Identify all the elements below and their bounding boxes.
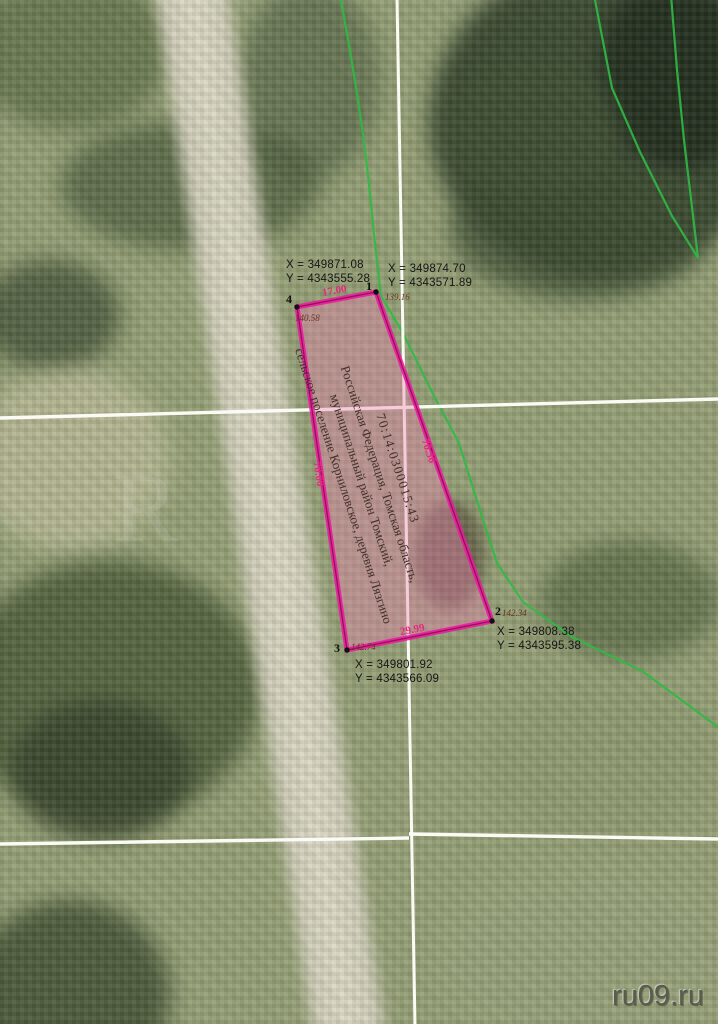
vertex-number-2: 2 <box>495 604 501 619</box>
point-3-coordinates: X = 349801.92 Y = 4343566.09 <box>355 658 439 686</box>
vertex-number-4: 4 <box>286 292 292 307</box>
point-2-x: X = 349808.38 <box>497 625 581 639</box>
contour-line <box>594 0 698 258</box>
vertex-number-1: 1 <box>366 279 372 294</box>
grid-line-horizontal-lower <box>0 834 718 844</box>
point-2-mark: 142.34 <box>502 608 527 618</box>
point-4-x: X = 349871.08 <box>286 258 370 272</box>
faint-watermark-letter: R <box>112 450 179 565</box>
point-1-coordinates: X = 349874.70 Y = 4343571.89 <box>388 262 472 290</box>
point-2-coordinates: X = 349808.38 Y = 4343595.38 <box>497 625 581 653</box>
point-4-y: Y = 4343555.28 <box>286 272 370 286</box>
satellite-map-view: X = 349871.08 Y = 4343555.28 X = 349874.… <box>0 0 718 1024</box>
point-1-mark: 139.16 <box>385 292 410 302</box>
vertex-dot-2 <box>489 618 494 623</box>
site-watermark: ru09.ru <box>612 980 704 1013</box>
vertex-dot-1 <box>373 289 378 294</box>
point-3-x: X = 349801.92 <box>355 658 439 672</box>
point-3-y: Y = 4343566.09 <box>355 672 439 686</box>
vertex-dot-3 <box>344 647 349 652</box>
vertex-number-3: 3 <box>334 641 340 656</box>
point-1-y: Y = 4343571.89 <box>388 276 472 290</box>
point-3-mark: 142.74 <box>351 642 376 652</box>
point-2-y: Y = 4343595.38 <box>497 639 581 653</box>
vertex-dot-4 <box>294 304 299 309</box>
point-4-coordinates: X = 349871.08 Y = 4343555.28 <box>286 258 370 286</box>
point-1-x: X = 349874.70 <box>388 262 472 276</box>
